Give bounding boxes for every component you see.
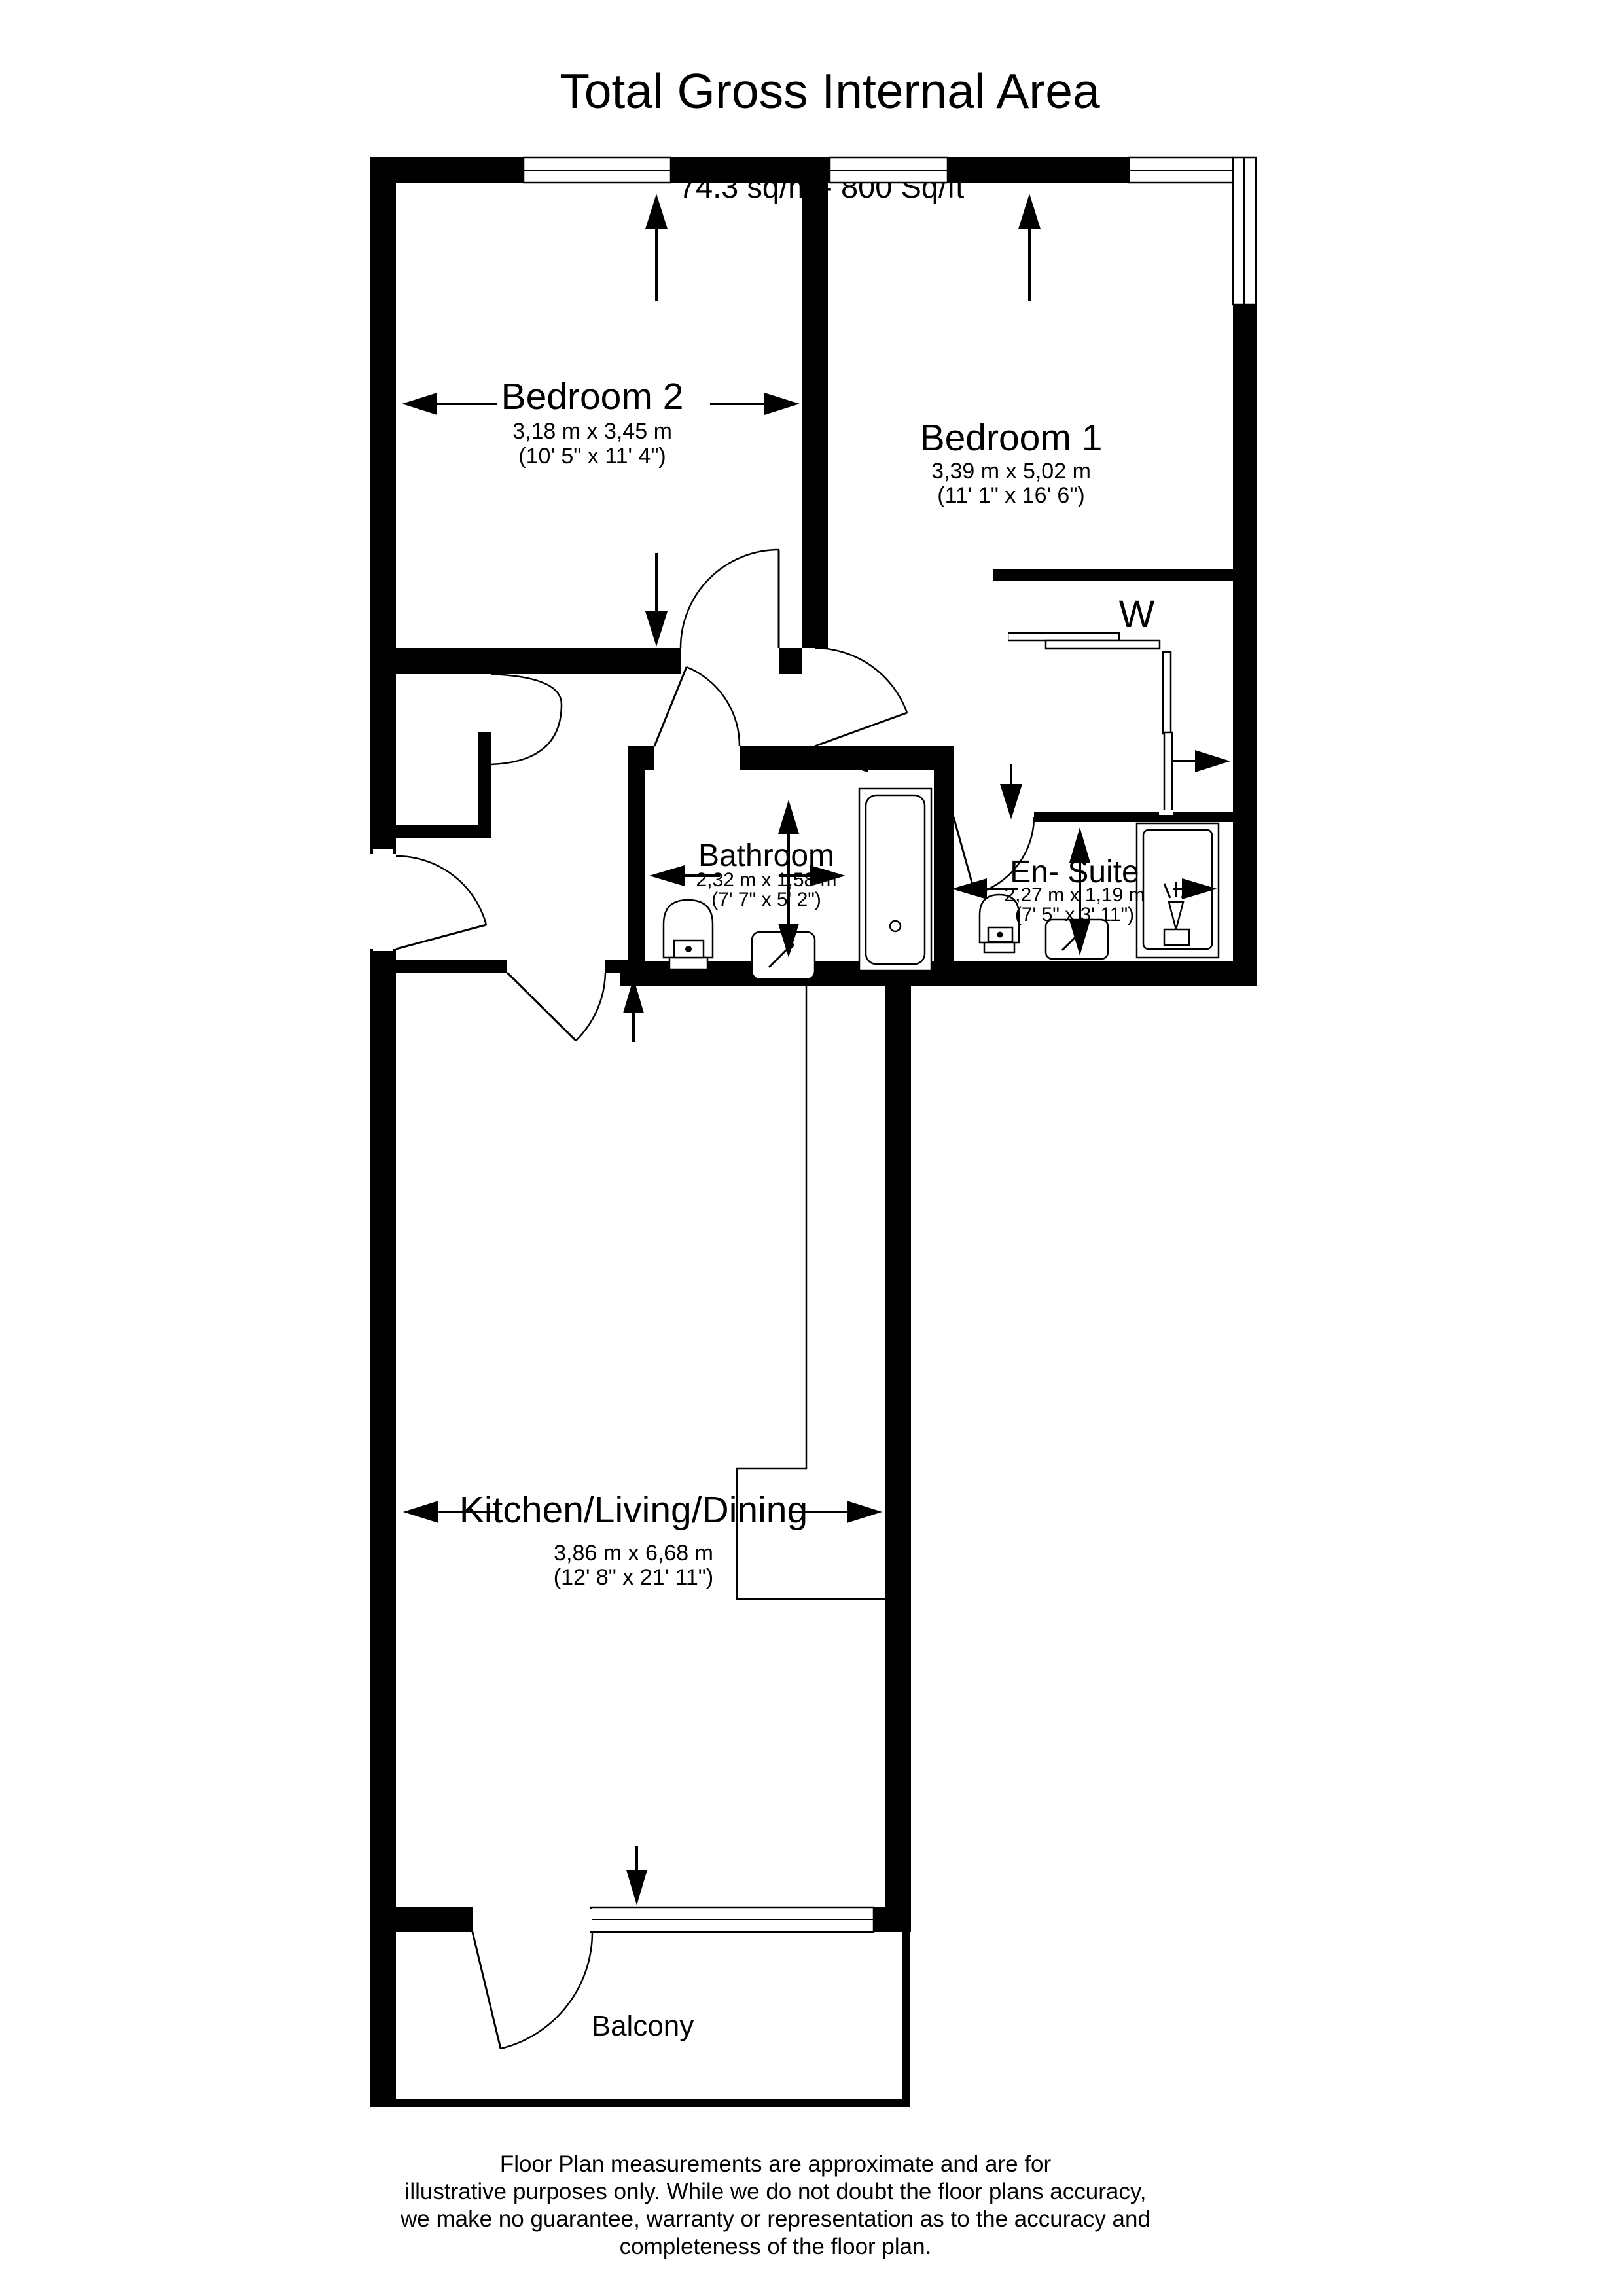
room-name: Bathroom: [698, 838, 834, 873]
entrance-door: [396, 856, 486, 949]
ensuite-label: En- Suite 2,27 m x 1,19 m (7' 5" x 3' 11…: [1004, 855, 1145, 925]
bathtub-icon: [859, 789, 931, 971]
balcony-sliding-door: [591, 1907, 874, 1932]
bathroom-label: Bathroom 2,32 m x 1,58 m (7' 7" x 5' 2"): [696, 838, 836, 910]
room-dims-metric: 3,86 m x 6,68 m: [554, 1541, 713, 1566]
disclaimer-line: we make no guarantee, warranty or repres…: [400, 2206, 1150, 2232]
balcony-label: Balcony: [592, 2010, 694, 2042]
bedroom2-window: [524, 158, 671, 183]
room-dims-metric: 3,18 m x 3,45 m: [512, 419, 672, 444]
room-name: Bedroom 2: [501, 376, 684, 418]
bedroom1-corner-window: [1129, 158, 1256, 304]
bathroom-door: [654, 667, 740, 746]
floor-plan: Total Gross Internal Area 74.3 sq/m - 80…: [0, 0, 1623, 2296]
disclaimer-line: Floor Plan measurements are approximate …: [500, 2151, 1052, 2177]
page-title: Total Gross Internal Area: [560, 63, 1100, 118]
toilet-icon: [664, 900, 713, 969]
arrow-down-icon: [1000, 764, 1022, 819]
arrow-right-icon: [710, 393, 800, 415]
walls-layer: [370, 157, 1257, 2107]
bedroom1-window: [830, 158, 948, 183]
wardrobe-sliding-doors: [1003, 630, 1173, 815]
wardrobe-label: W: [1119, 593, 1155, 636]
balcony-door: [473, 1932, 592, 2049]
room-dims-metric: 2,32 m x 1,58 m: [696, 869, 836, 891]
disclaimer-line: illustrative purposes only. While we do …: [405, 2179, 1147, 2204]
arrow-up-icon: [645, 194, 668, 301]
bedroom2-label: Bedroom 2 3,18 m x 3,45 m (10' 5" x 11' …: [501, 376, 684, 469]
arrow-down-icon: [645, 553, 668, 647]
arrow-up-icon: [1018, 194, 1041, 301]
bedroom1-door: [815, 648, 907, 746]
room-name: Bedroom 1: [920, 417, 1103, 459]
room-dims-metric: 2,27 m x 1,19 m: [1004, 884, 1145, 906]
room-name: Kitchen/Living/Dining: [459, 1489, 808, 1531]
room-dims-imperial: (7' 5" x 3' 11"): [1015, 904, 1134, 925]
room-dims-imperial: (7' 7" x 5' 2"): [711, 889, 821, 910]
arrow-up-icon: [623, 978, 644, 1042]
footer-disclaimer: Floor Plan measurements are approximate …: [400, 2151, 1150, 2259]
arrow-right-icon: [1171, 750, 1230, 772]
room-dims-imperial: (11' 1" x 16' 6"): [937, 483, 1084, 508]
bedroom2-door: [681, 550, 779, 648]
closet-bifold-doors: [491, 674, 562, 764]
room-dims-metric: 3,39 m x 5,02 m: [931, 459, 1091, 484]
arrow-left-icon: [402, 393, 497, 415]
room-dims-imperial: (10' 5" x 11' 4"): [518, 444, 666, 469]
arrow-down-icon: [626, 1846, 647, 1905]
disclaimer-line: completeness of the floor plan.: [620, 2234, 932, 2259]
room-dims-imperial: (12' 8" x 21' 11"): [554, 1565, 713, 1590]
kitchen-label: Kitchen/Living/Dining 3,86 m x 6,68 m (1…: [459, 1489, 808, 1590]
kitchen-door: [507, 973, 605, 1041]
bedroom1-label: Bedroom 1 3,39 m x 5,02 m (11' 1" x 16' …: [920, 417, 1103, 508]
